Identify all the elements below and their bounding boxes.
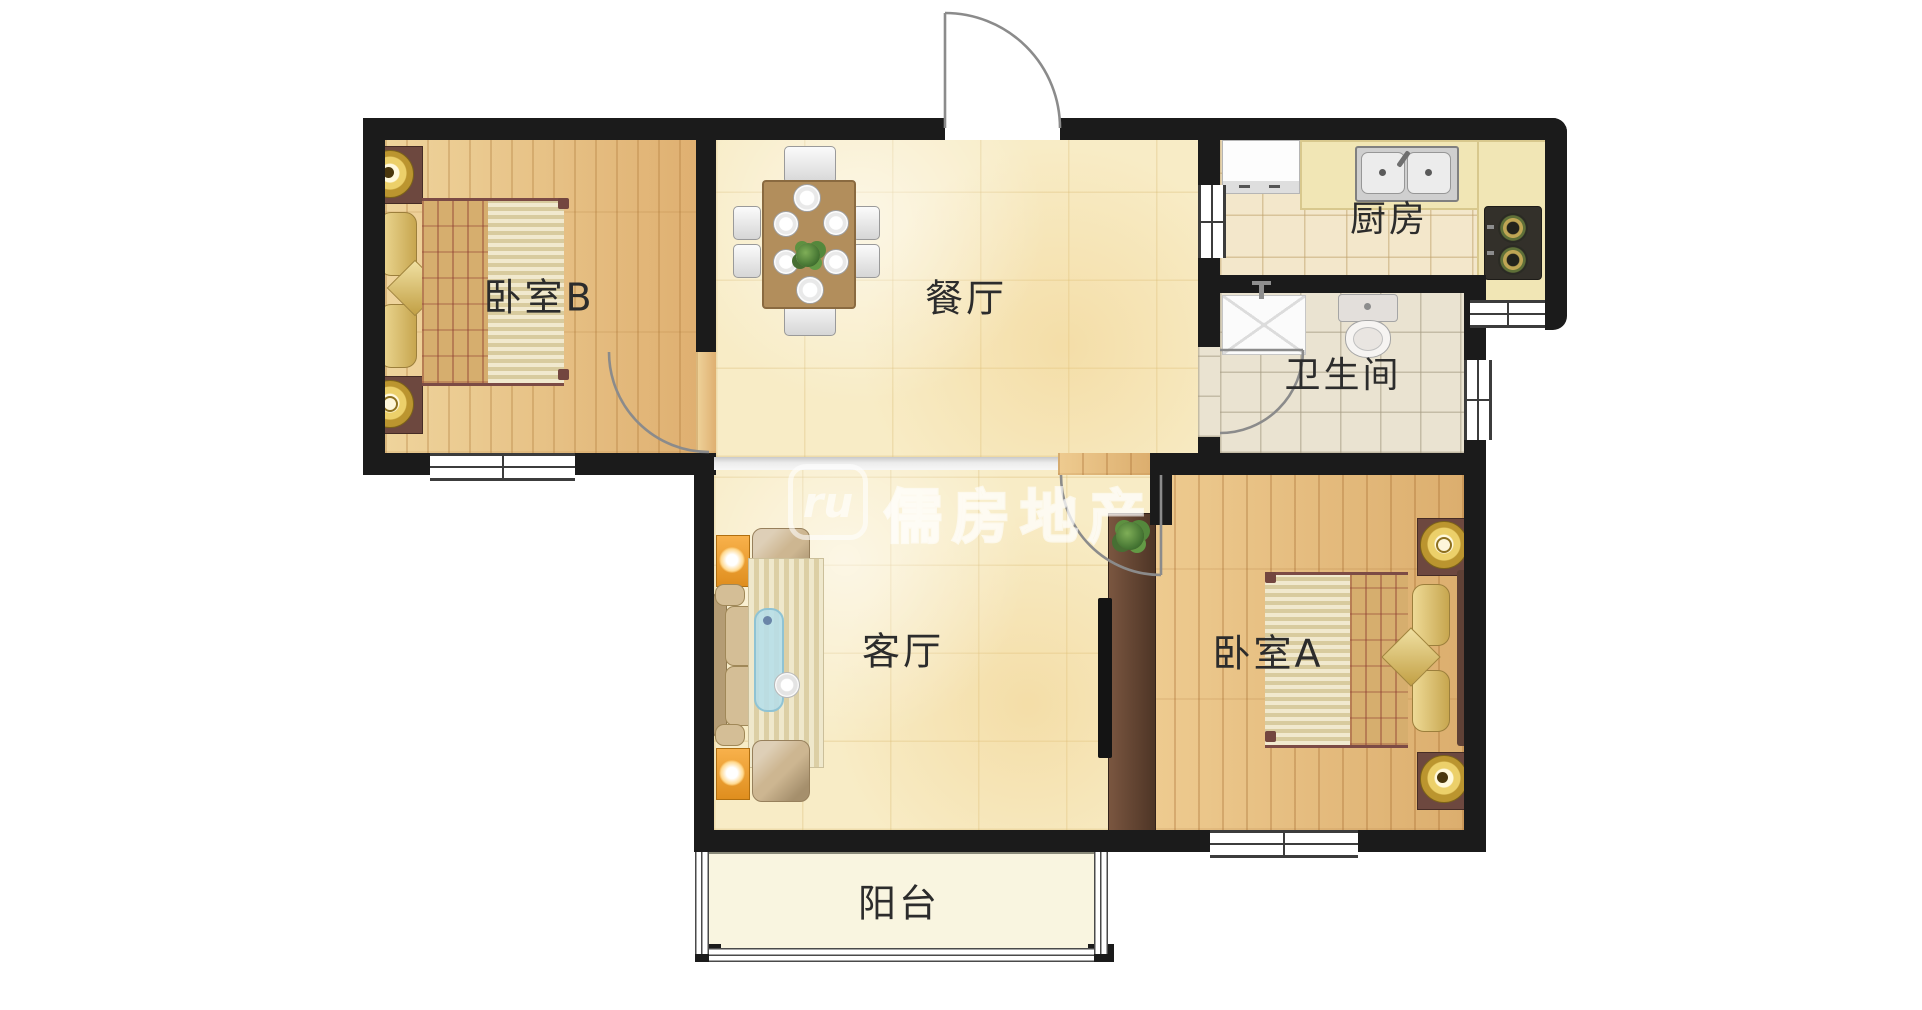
floor-plan-canvas: 卧室B 餐厅 厨房 卫生间 客厅 卧室A 阳台 ru 儒房地产 — [0, 0, 1922, 1010]
label-living: 客厅 — [862, 621, 944, 676]
label-kitchen: 厨房 — [1350, 190, 1428, 242]
watermark-logo: ru — [788, 464, 868, 540]
label-bedroom-b: 卧室B — [483, 267, 594, 322]
label-dining: 餐厅 — [925, 268, 1007, 323]
watermark-brand-text: 儒房地产 — [884, 470, 1156, 554]
bedroom-b-door-arc — [609, 352, 709, 452]
label-balcony: 阳台 — [858, 873, 940, 928]
label-bathroom: 卫生间 — [1284, 346, 1401, 398]
watermark: ru 儒房地产 — [788, 462, 1188, 546]
label-bedroom-a: 卧室A — [1213, 623, 1324, 678]
entrance-door-arc — [945, 13, 1060, 128]
